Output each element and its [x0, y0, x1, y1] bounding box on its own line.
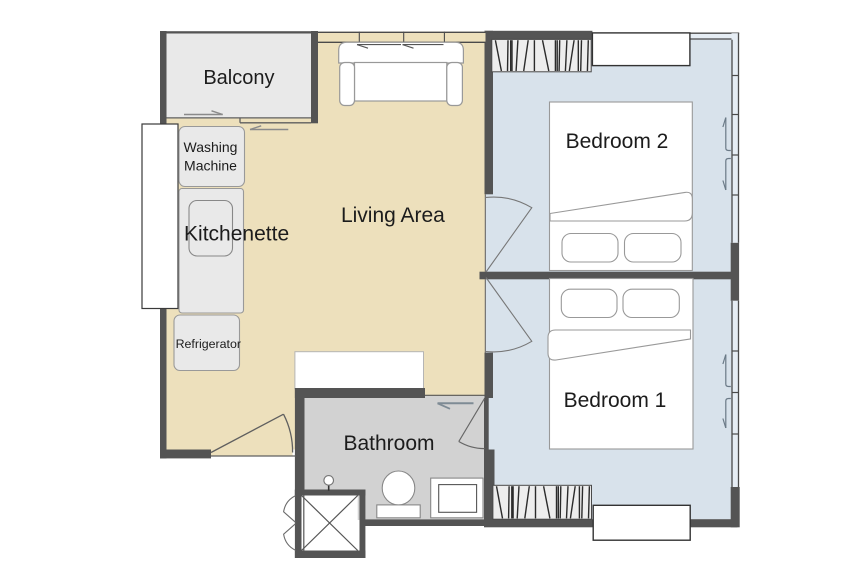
svg-text:Bedroom 2: Bedroom 2 [566, 130, 669, 153]
svg-text:Balcony: Balcony [203, 67, 274, 89]
svg-text:Bedroom 1: Bedroom 1 [564, 389, 667, 412]
svg-text:Refrigerator: Refrigerator [176, 337, 241, 351]
svg-text:Machine: Machine [184, 158, 237, 174]
svg-text:Living Area: Living Area [341, 204, 445, 227]
svg-text:Kitchenette: Kitchenette [184, 223, 289, 246]
svg-text:Washing: Washing [184, 139, 238, 155]
svg-text:Bathroom: Bathroom [343, 432, 434, 455]
